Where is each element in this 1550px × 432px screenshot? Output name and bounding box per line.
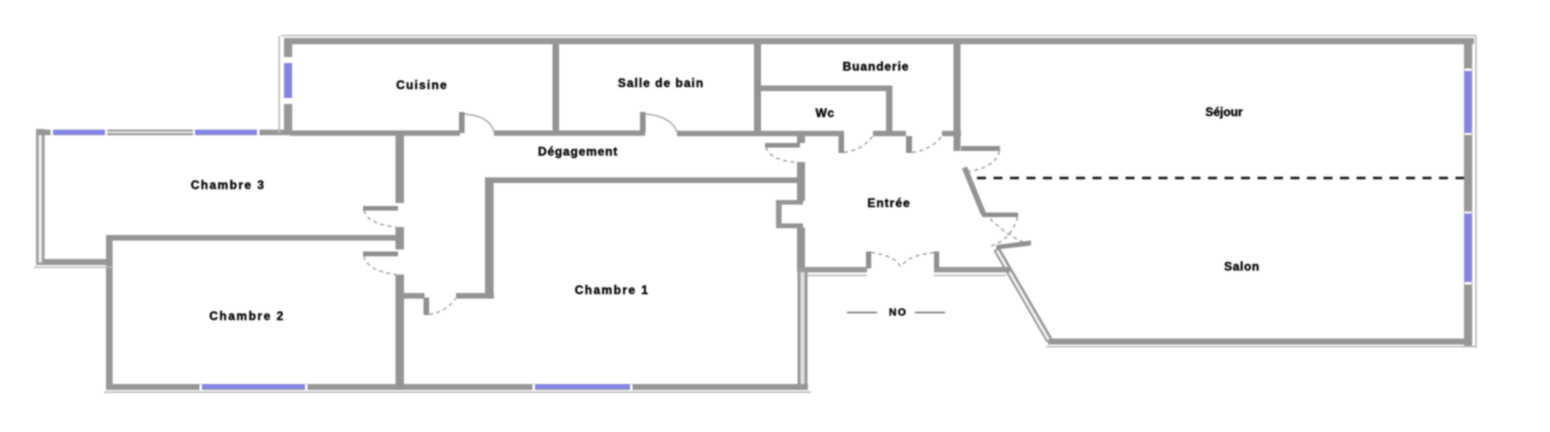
svg-text:Dégagement: Dégagement	[538, 145, 618, 159]
svg-text:Entrée: Entrée	[867, 196, 910, 210]
svg-text:Wc: Wc	[816, 106, 835, 120]
svg-text:Séjour: Séjour	[1205, 105, 1243, 119]
svg-text:Chambre 2: Chambre 2	[209, 309, 285, 323]
svg-text:Chambre 3: Chambre 3	[191, 178, 266, 192]
svg-text:Salle de bain: Salle de bain	[618, 76, 704, 90]
svg-text:NO: NO	[889, 307, 907, 319]
svg-text:Cuisine: Cuisine	[396, 78, 448, 92]
svg-text:Salon: Salon	[1224, 260, 1260, 274]
svg-text:Buanderie: Buanderie	[843, 60, 910, 74]
svg-text:Chambre 1: Chambre 1	[575, 283, 650, 297]
